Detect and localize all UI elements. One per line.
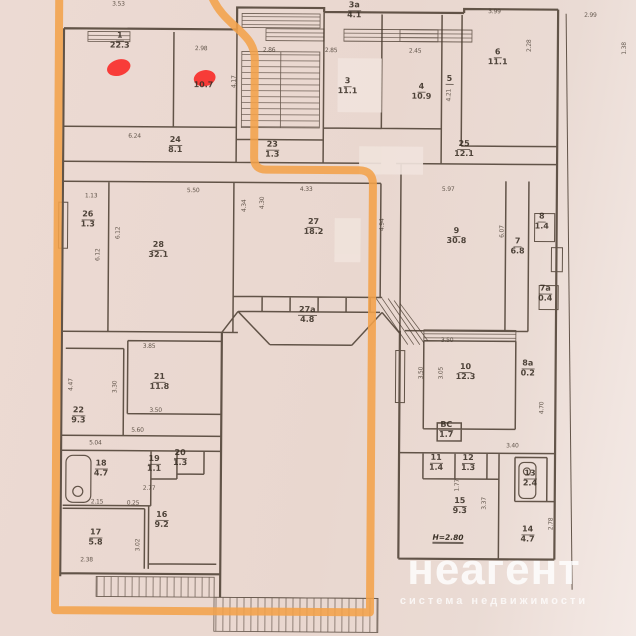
- dimension-label: 3.85: [143, 343, 156, 350]
- dimension-label: 6.24: [128, 133, 141, 140]
- dimension-label: 5.97: [442, 186, 455, 193]
- room-area: 1.1: [147, 465, 161, 474]
- room-area: 9.2: [155, 521, 169, 530]
- floor-plan: 122.3 10.7 311.1 410.9 5 611.1 3а4.1 248…: [0, 0, 636, 636]
- room-area: 10.7: [194, 81, 214, 90]
- room-area: 9.3: [71, 416, 85, 425]
- room-area: 22.3: [110, 41, 130, 50]
- dimension-label: 2.28: [526, 39, 533, 52]
- room-label-26: 261.3: [81, 210, 95, 229]
- dimension-label: 3.05: [438, 367, 445, 380]
- dimension-label: 2.77: [143, 485, 156, 492]
- dimension-label: 3.37: [481, 497, 488, 510]
- dimension-label: 2.99: [584, 12, 597, 19]
- room-area: 1.7: [439, 431, 453, 440]
- dimension-label: 0.25: [127, 500, 140, 507]
- room-area: 6.8: [510, 247, 524, 256]
- room-area: 1.3: [173, 459, 187, 468]
- dimension-label: 2.15: [91, 498, 104, 505]
- room-area: 0.4: [538, 294, 552, 303]
- watermark: неагент система недвижимости: [388, 548, 600, 607]
- room-area: 8.1: [168, 146, 182, 155]
- room-area: 1.4: [429, 464, 443, 473]
- room-area: 11.1: [488, 58, 508, 67]
- room-label-12: 121.3: [461, 454, 475, 473]
- dimension-label: 6.12: [115, 227, 122, 240]
- room-area: 30.8: [447, 237, 467, 246]
- room-area: 1.4: [535, 222, 549, 231]
- dimension-label: 4.30: [259, 197, 266, 210]
- dimension-label: 2.78: [548, 518, 555, 531]
- room-label-21: 2111.8: [149, 373, 169, 392]
- dimension-label: 6.07: [499, 225, 506, 238]
- dimension-label: 3.40: [506, 442, 519, 449]
- dimension-label: 3.30: [111, 381, 118, 394]
- room-number: 5: [446, 75, 454, 85]
- dimension-label: 6.12: [94, 248, 101, 261]
- room-label-13: 132.4: [523, 469, 537, 488]
- room-area: 1.3: [265, 150, 279, 159]
- room-area: 12.3: [456, 373, 476, 382]
- room-label-15: 159.3: [453, 497, 467, 516]
- room-label-8: 81.4: [535, 213, 549, 232]
- dimension-label: 4.94: [379, 218, 386, 231]
- room-label-2: 10.7: [194, 81, 214, 90]
- room-area: 4.7: [94, 469, 108, 478]
- room-label-9: 930.8: [447, 227, 467, 246]
- room-label-27: 2718.2: [304, 218, 324, 237]
- dimension-label: 4.34: [241, 199, 248, 212]
- room-label-25: 2512.1: [454, 140, 474, 159]
- room-label-23: 231.3: [265, 141, 279, 160]
- dimension-label: 1.13: [85, 192, 98, 199]
- room-label-16: 169.2: [155, 511, 169, 530]
- room-label-4: 410.9: [412, 83, 432, 102]
- dimension-label: 1.38: [621, 42, 628, 55]
- staircase-hatch: [84, 12, 472, 633]
- dimension-label: 4.21: [446, 89, 453, 102]
- room-area: 11.1: [338, 87, 358, 96]
- room-label-vs: ВС1.7: [439, 421, 453, 440]
- dimension-label: 2.98: [195, 45, 208, 52]
- room-label-28: 2832.1: [148, 241, 168, 260]
- room-area: 2.4: [523, 479, 537, 488]
- dimension-label: 2.38: [80, 556, 93, 563]
- dimension-label: 5.50: [187, 187, 200, 194]
- dimension-label: 3.50: [418, 367, 425, 380]
- dimension-label: 5.04: [89, 439, 102, 446]
- room-area: 10.9: [412, 92, 432, 101]
- dimension-label: 3.99: [488, 8, 501, 15]
- room-label-3: 311.1: [338, 77, 358, 96]
- room-label-19: 191.1: [147, 455, 161, 474]
- room-area: 0.2: [521, 369, 535, 378]
- room-label-7a: 7а0.4: [538, 285, 552, 304]
- dimension-label: 2.86: [263, 47, 276, 54]
- room-label-11: 111.4: [429, 454, 443, 473]
- room-area: 9.3: [453, 507, 467, 516]
- room-area: 1.3: [81, 220, 95, 229]
- room-area: 4.8: [300, 316, 314, 325]
- room-area: 11.8: [149, 383, 169, 392]
- room-label-20: 201.3: [173, 449, 187, 468]
- watermark-brand: неагент: [388, 548, 600, 592]
- room-area: 32.1: [148, 251, 168, 260]
- room-label-3a: 3а4.1: [347, 1, 361, 20]
- room-label-7: 76.8: [510, 237, 524, 256]
- room-label-17: 175.8: [88, 528, 102, 547]
- room-label-1: 122.3: [110, 32, 130, 51]
- room-label-22: 229.3: [71, 406, 85, 425]
- dimension-label: 5.60: [131, 427, 144, 434]
- dimension-label: 4.70: [538, 402, 545, 415]
- room-label-18: 184.7: [94, 459, 108, 478]
- dimension-label: 4.17: [231, 75, 238, 88]
- floor-plan-photo: 122.3 10.7 311.1 410.9 5 611.1 3а4.1 248…: [0, 0, 636, 636]
- room-area: 4.1: [347, 11, 361, 20]
- room-area: 5.8: [88, 538, 102, 547]
- watermark-tagline: система недвижимости: [388, 595, 600, 607]
- room-label-27a: 27а4.8: [298, 306, 317, 325]
- room-area: 1.3: [461, 464, 475, 473]
- dimension-label: 4.47: [67, 378, 74, 391]
- room-area: 4.7: [520, 535, 534, 544]
- dimension-label: 3.53: [112, 1, 125, 8]
- dimension-label: 4.33: [300, 186, 313, 193]
- room-label-14: 144.7: [520, 525, 534, 544]
- room-label-10: 1012.3: [456, 363, 476, 382]
- orange-highlight-line: [55, 0, 374, 612]
- room-label-6: 611.1: [488, 48, 508, 67]
- room-label-24: 248.1: [168, 136, 182, 155]
- room-area: 18.2: [304, 228, 324, 237]
- room-label-8a: 8а0.2: [521, 359, 535, 378]
- dimension-label: 2.45: [409, 48, 422, 55]
- room-label-5: 5: [446, 75, 454, 85]
- room-area: 12.1: [454, 150, 474, 159]
- dimension-label: 1.77: [454, 479, 461, 492]
- height-note: Н=2.80: [432, 533, 463, 544]
- dimension-label: 3.50: [441, 337, 454, 344]
- dimension-label: 3.02: [134, 539, 141, 552]
- dimension-label: 3.50: [149, 407, 162, 414]
- dimension-label: 2.85: [325, 47, 338, 54]
